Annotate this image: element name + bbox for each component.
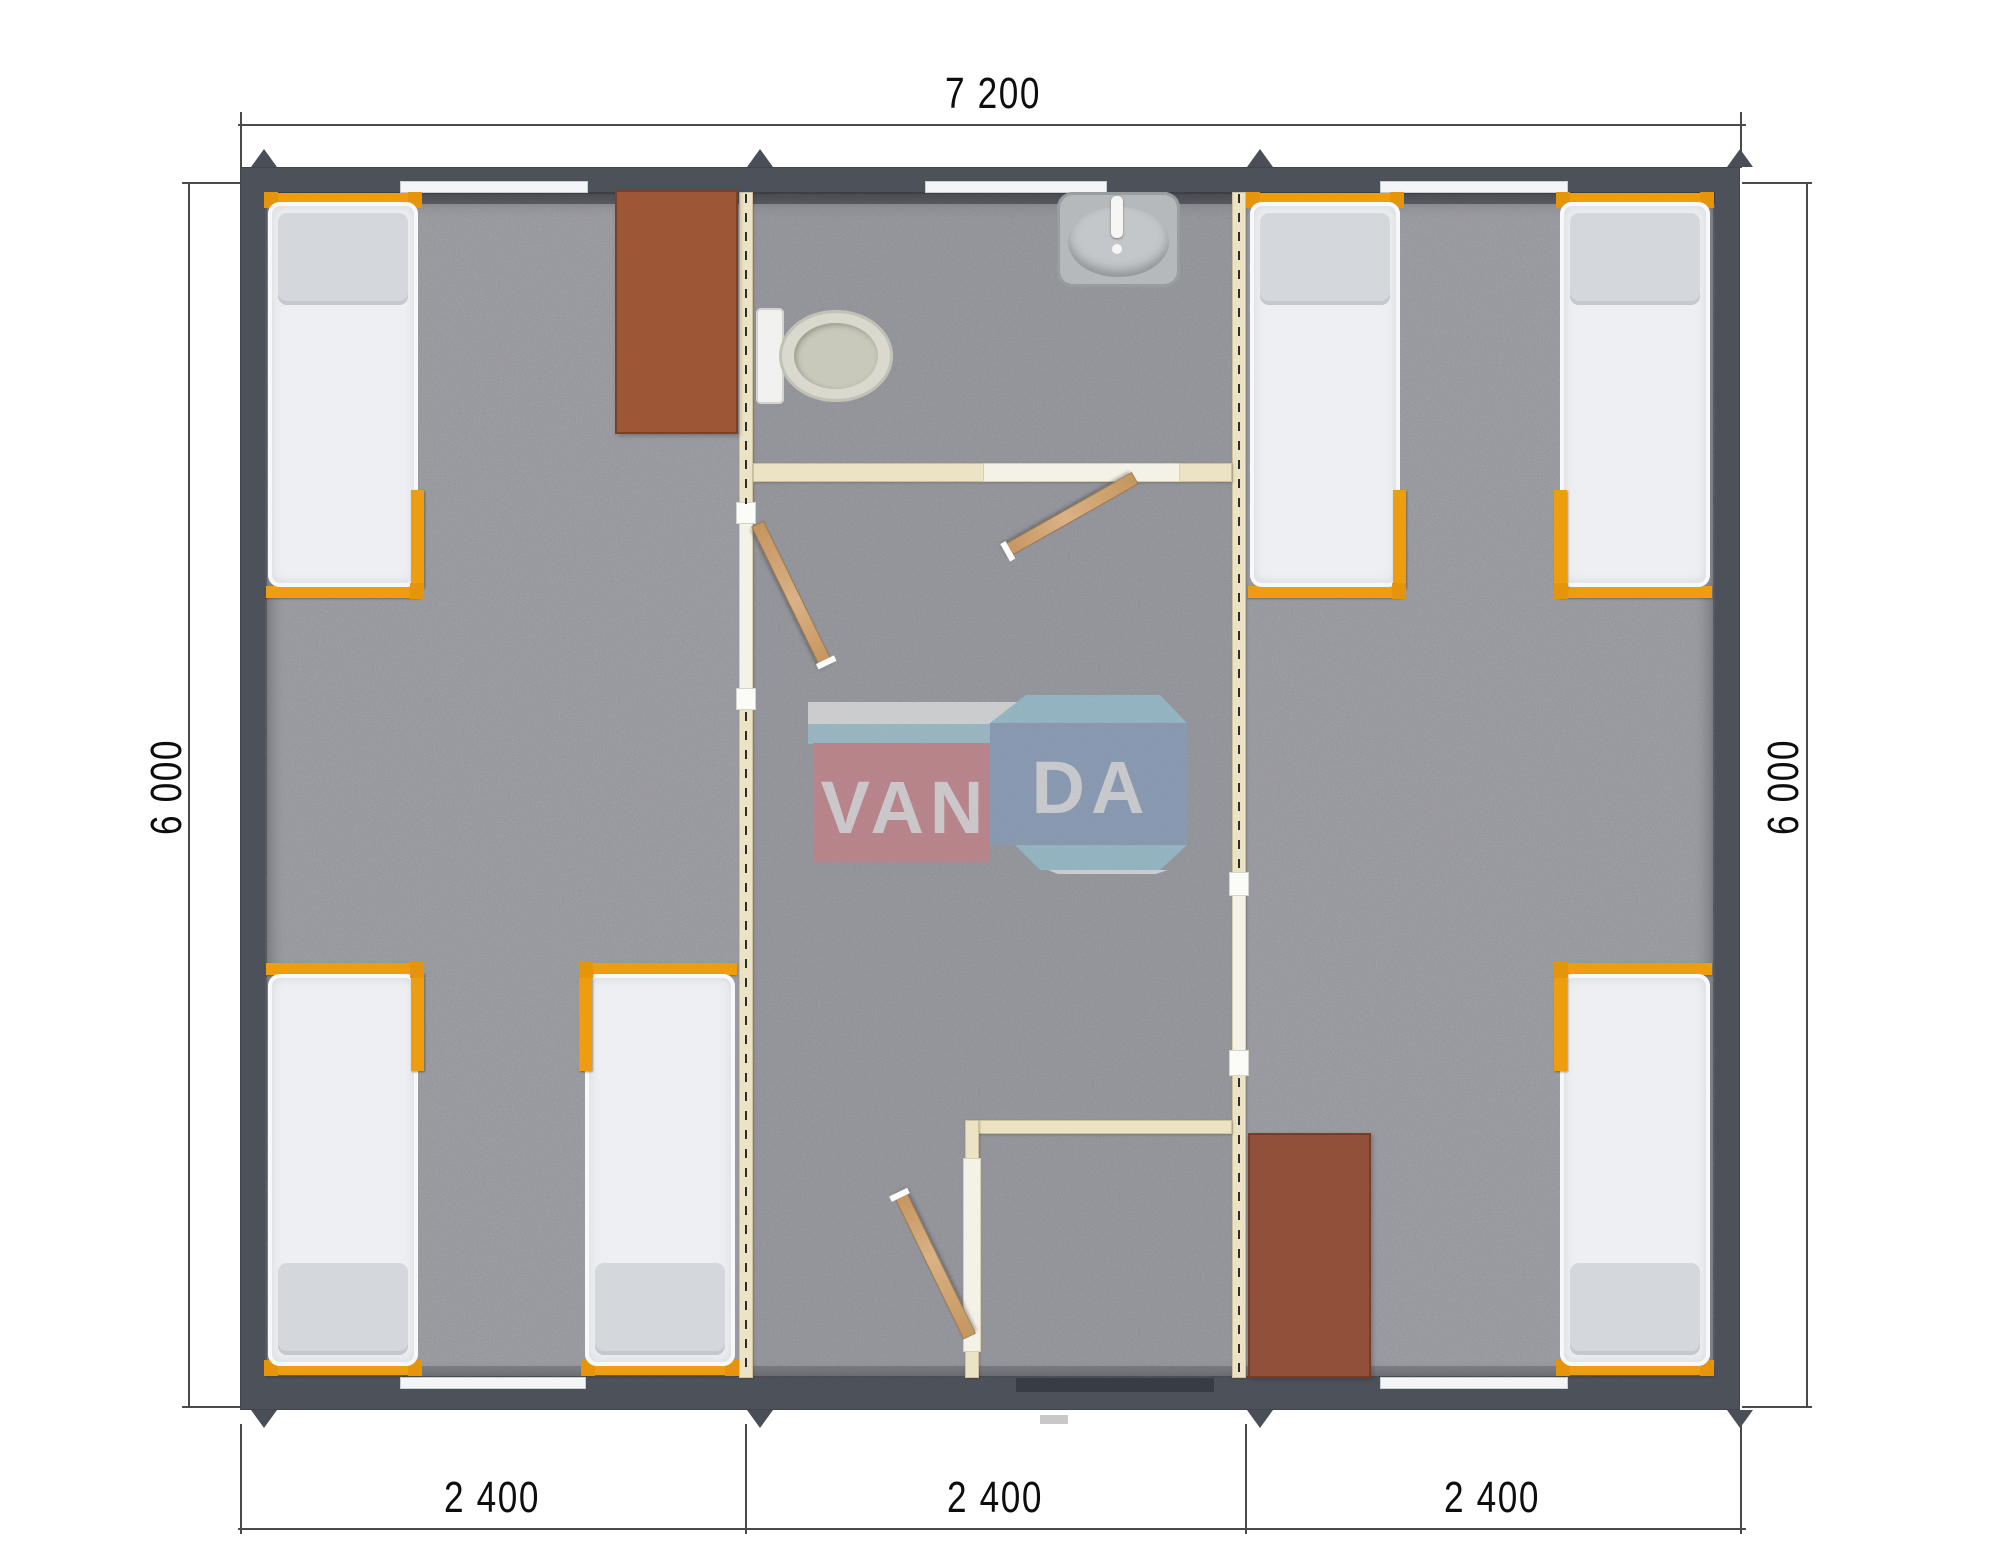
- bed-foot-bracket: [1393, 490, 1406, 588]
- door-jamb: [1229, 1050, 1249, 1076]
- bed-foot-bracket: [1554, 490, 1567, 588]
- bed-2: [266, 963, 420, 1375]
- partition-dash-line: [745, 712, 747, 1376]
- bed-foot-corner: [1554, 962, 1568, 978]
- dimension-extension: [240, 1424, 242, 1534]
- dimension-label-top: 7 200: [893, 70, 1093, 118]
- entry-door: [1016, 1378, 1214, 1392]
- dimension-extension: [1742, 1406, 1812, 1408]
- door-jamb: [1229, 872, 1249, 896]
- bathroom-door-opening: [983, 463, 1180, 482]
- bed-foot-bracket: [1554, 973, 1567, 1071]
- logo-text-van: VAN: [821, 766, 990, 849]
- vanda-watermark: VAN DA: [808, 692, 1200, 874]
- partition-dash-line: [1238, 1078, 1240, 1376]
- dimension-extension: [1740, 1424, 1742, 1534]
- floor-plan-page: 7 200 6 000 6 000 2 400 2 400 2 400 VAN …: [0, 0, 2000, 1566]
- dimension-label-bottom-1: 2 400: [392, 1474, 592, 1522]
- right-room-doorway: [1232, 876, 1246, 1052]
- roof-peak-icon: [1727, 149, 1753, 167]
- logo-blue-bevel-bottom: [1015, 845, 1187, 870]
- door-jamb: [736, 688, 756, 710]
- bed-foot-rail: [266, 586, 420, 598]
- partition-dash-line: [745, 194, 747, 504]
- bed-pillow: [278, 1263, 408, 1355]
- partition-dash-line: [1238, 194, 1240, 874]
- bed-foot-bracket: [411, 490, 424, 588]
- bed-foot-corner: [410, 962, 424, 978]
- window-top-right: [1380, 181, 1568, 193]
- logo-lightblue-band: [808, 724, 990, 744]
- table-bottom-right: [1248, 1133, 1371, 1378]
- roof-peak-icon: [251, 149, 277, 167]
- dimension-label-left: 6 000: [143, 687, 191, 887]
- window-top-left: [400, 181, 588, 193]
- door-jamb: [736, 502, 756, 524]
- roof-peak-icon: [1727, 1410, 1753, 1428]
- bed-6: [1558, 963, 1712, 1375]
- bed-foot-corner: [1392, 583, 1406, 599]
- dimension-extension: [1245, 1424, 1247, 1534]
- bed-pillow: [1570, 213, 1700, 305]
- dimension-label-bottom-3: 2 400: [1392, 1474, 1592, 1522]
- sink-knob: [1112, 244, 1122, 254]
- roof-peak-icon: [1247, 1410, 1273, 1428]
- bed-pillow: [278, 213, 408, 305]
- table-top-left: [615, 190, 738, 434]
- bed-foot-rail: [1558, 586, 1712, 598]
- bed-pillow: [1260, 213, 1390, 305]
- entry-step-mark: [1040, 1415, 1068, 1424]
- bed-foot-corner: [410, 583, 424, 599]
- toilet-bowl-inner: [794, 323, 878, 389]
- roof-peak-icon: [747, 149, 773, 167]
- dimension-extension: [1742, 182, 1812, 184]
- window-bottom-left: [400, 1377, 586, 1389]
- bed-pillow: [1570, 1263, 1700, 1355]
- bed-foot-rail: [1248, 586, 1402, 598]
- bed-foot-bracket: [411, 973, 424, 1071]
- dimension-extension: [745, 1424, 747, 1534]
- left-room-doorway: [739, 506, 753, 710]
- dimension-extension: [240, 112, 242, 168]
- bed-foot-bracket: [579, 973, 592, 1071]
- roof-peak-icon: [747, 1410, 773, 1428]
- bed-head-rail: [266, 1365, 420, 1375]
- bed-1: [266, 193, 420, 598]
- bed-3: [583, 963, 737, 1375]
- bed-5: [1558, 193, 1712, 598]
- bed-head-rail: [1558, 1365, 1712, 1375]
- dimension-line-bottom: [238, 1528, 1746, 1530]
- roof-peak-icon: [251, 1410, 277, 1428]
- bed-pillow: [595, 1263, 725, 1355]
- sink-faucet-icon: [1111, 196, 1123, 238]
- shower-wall-top: [965, 1120, 1232, 1134]
- logo-white-sliver: [1048, 870, 1168, 874]
- roof-peak-icon: [1247, 149, 1273, 167]
- logo-text-da: DA: [1032, 746, 1151, 829]
- dimension-line-top: [238, 124, 1746, 126]
- bed-4: [1248, 193, 1402, 598]
- window-bottom-right: [1380, 1377, 1568, 1389]
- bed-head-rail: [583, 1365, 737, 1375]
- dimension-label-right: 6 000: [1760, 687, 1808, 887]
- bed-foot-corner: [579, 962, 593, 978]
- dimension-label-bottom-2: 2 400: [895, 1474, 1095, 1522]
- building-outline: VAN DA: [240, 167, 1740, 1410]
- bed-foot-corner: [1554, 583, 1568, 599]
